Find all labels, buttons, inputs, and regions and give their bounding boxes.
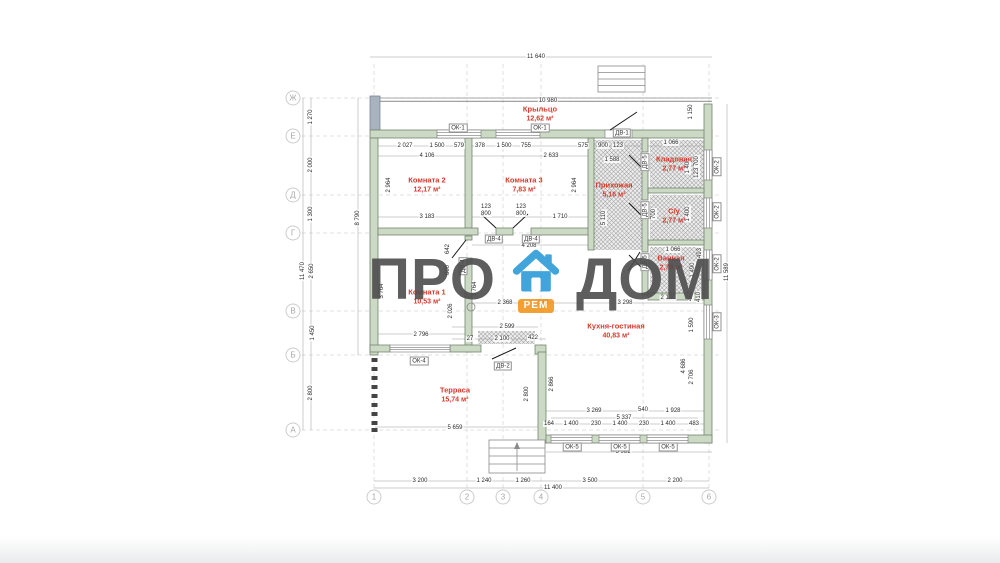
dimension-text: 5 659 (446, 425, 463, 431)
dimension-text: 1 300 (308, 205, 314, 222)
dimension-text: 4 106 (418, 153, 435, 159)
axis-marker-4: 4 (534, 490, 549, 505)
axis-marker-Е: Е (286, 129, 301, 144)
room-label: Прихожая5,16 м² (595, 181, 632, 200)
dimension-text: 378 (474, 143, 486, 149)
dimension-text: 800 (480, 211, 492, 217)
watermark-badge: РЕМ (518, 299, 555, 313)
axis-marker-5: 5 (636, 490, 651, 505)
axis-marker-Д: Д (286, 188, 301, 203)
dimension-text: 755 (520, 143, 532, 149)
dimension-text: 1 400 (611, 421, 628, 427)
bottom-fade (0, 537, 1000, 563)
opening-label-ок-5: ОК-5 (659, 443, 678, 452)
dimension-text: 11 470 (300, 261, 306, 281)
dimension-text: 2 650 (309, 262, 315, 279)
dimension-text: 1 400 (562, 421, 579, 427)
room-name: Кухня-гостиная (587, 322, 644, 332)
room-area: 5,16 м² (595, 190, 632, 199)
axis-marker-Ж: Ж (286, 91, 301, 106)
axis-marker-1: 1 (367, 490, 382, 505)
room-name: Крыльцо (523, 105, 557, 115)
dimension-text: 2 800 (524, 385, 530, 402)
watermark: ПРО РЕМ ДОМ (326, 238, 756, 322)
dimension-text: 483 (688, 421, 700, 427)
dimension-text: 3 183 (418, 214, 435, 220)
dimension-text: 1 928 (664, 408, 681, 414)
dimension-text: 11 640 (526, 54, 546, 60)
axis-marker-А: А (286, 423, 301, 438)
opening-label-дв-5: ДВ-5 (641, 201, 650, 219)
room-label: Комната 212,17 м² (408, 176, 445, 195)
dimension-text: 11 400 (543, 485, 563, 491)
axis-marker-3: 3 (496, 490, 511, 505)
dimension-text: 1 066 (662, 140, 679, 146)
dimension-text: 2 633 (542, 153, 559, 159)
dimension-text: 1 450 (310, 324, 316, 341)
dimension-text: 123 700 (694, 155, 700, 179)
dimension-text: 1 260 (514, 478, 531, 484)
room-name: С/у (662, 207, 685, 217)
opening-label-ок-5: ОК-5 (611, 443, 630, 452)
dimension-text: 123 (612, 143, 624, 149)
house-icon (508, 247, 564, 297)
dimension-text: 1 710 (551, 214, 568, 220)
dimension-text: 27 (466, 336, 475, 342)
watermark-dom: ДОМ (576, 251, 714, 309)
room-label: Кладовая2,77 м² (656, 155, 692, 174)
opening-label-ок-1: ОК-1 (449, 124, 468, 133)
watermark-pro: ПРО (368, 251, 496, 309)
floorplan-canvas: 11 64010 9801 15011 58911 4708 7901 2702… (0, 0, 1000, 563)
opening-label-ок-2: ОК-2 (713, 203, 722, 222)
dimension-text: 1 240 (475, 478, 492, 484)
dimension-text: 230 (638, 421, 650, 427)
room-name: Комната 3 (505, 176, 542, 186)
dimension-text: 8 790 (355, 209, 361, 226)
dimension-text: 2 964 (572, 176, 578, 193)
dimension-text: 3 269 (585, 408, 602, 414)
dimension-text: 1 400 (685, 205, 691, 222)
dimension-text: 1 270 (308, 108, 314, 125)
room-area: 2,77 м² (656, 164, 692, 173)
room-name: Терраса (440, 386, 470, 396)
dimension-text: 3 200 (411, 478, 428, 484)
room-label: С/у2,77 м² (662, 207, 685, 226)
room-label: Кухня-гостиная40,83 м² (587, 322, 644, 341)
dimension-text: 123 (480, 204, 492, 210)
axis-marker-Б: Б (286, 348, 301, 363)
axis-marker-6: 6 (702, 490, 717, 505)
dimension-text: 230 (590, 421, 602, 427)
room-area: 7,83 м² (505, 185, 542, 194)
dimension-text: 1 150 (688, 103, 694, 120)
dimension-text: 1 500 (428, 143, 445, 149)
dimension-text: 2 800 (308, 384, 314, 401)
room-area: 2,77 м² (662, 216, 685, 225)
room-name: Кладовая (656, 155, 692, 165)
opening-label-ок-4: ОК-4 (410, 357, 429, 366)
dimension-text: 2 027 (396, 143, 413, 149)
room-name: Прихожая (595, 181, 632, 191)
axis-marker-Г: Г (286, 226, 301, 241)
dimension-text: 1 400 (659, 421, 676, 427)
room-label: Терраса15,74 м² (440, 386, 470, 405)
dimension-text: 422 (527, 335, 539, 341)
dimension-text: 900 (597, 143, 609, 149)
dimension-text: 540 (637, 407, 649, 413)
opening-label-ок-5: ОК-5 (563, 443, 582, 452)
room-area: 40,83 м² (587, 331, 644, 340)
dimension-text: 5 110 (601, 210, 607, 227)
room-area: 15,74 м² (440, 395, 470, 404)
dimension-text: 164 (543, 421, 555, 427)
dimension-text: 2 200 (666, 478, 683, 484)
dimension-text: 700 (651, 208, 657, 220)
dimension-text: 800 (515, 211, 527, 217)
room-name: Комната 2 (408, 176, 445, 186)
dimension-text: 579 (453, 143, 465, 149)
dimension-text: 3 500 (581, 478, 598, 484)
opening-label-дв-1: ДВ-1 (613, 129, 631, 138)
dimension-text: 1 588 (603, 157, 620, 163)
dimension-text: 2 706 (689, 368, 695, 385)
opening-label-ок-1: ОК-1 (531, 124, 550, 133)
dimension-text: 2 964 (386, 176, 392, 193)
room-area: 12,17 м² (408, 185, 445, 194)
dimension-text: 2 100 (493, 336, 510, 342)
dimension-text: 2 866 (549, 375, 555, 392)
axis-marker-В: В (286, 304, 301, 319)
opening-label-ок-2: ОК-2 (713, 158, 722, 177)
dimension-text: 4 686 (681, 357, 687, 374)
dimension-text: 575 (577, 143, 589, 149)
opening-label-дв-5: ДВ-5 (641, 153, 650, 171)
room-label: Крыльцо12,62 м² (523, 105, 557, 124)
dimension-text: 2 796 (412, 332, 429, 338)
room-area: 12,62 м² (523, 114, 557, 123)
dimension-text: 10 980 (538, 98, 558, 104)
dimension-text: 1 500 (495, 143, 512, 149)
axis-marker-2: 2 (460, 490, 475, 505)
opening-label-дв-2: ДВ-2 (494, 362, 512, 371)
dimension-text: 2 000 (308, 156, 314, 173)
dimension-text: 123 (515, 204, 527, 210)
room-label: Комната 37,83 м² (505, 176, 542, 195)
dimension-text: 2 599 (498, 324, 515, 330)
